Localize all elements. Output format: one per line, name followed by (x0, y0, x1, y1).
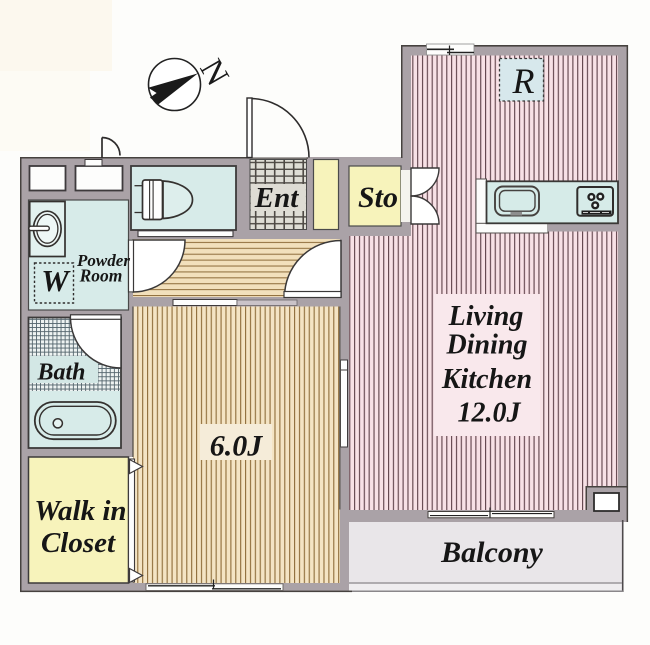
svg-text:R: R (512, 61, 535, 101)
svg-text:W: W (41, 263, 71, 298)
svg-text:Dining: Dining (446, 330, 528, 361)
svg-text:Walk in: Walk in (34, 495, 126, 527)
svg-text:12.0J: 12.0J (458, 398, 522, 429)
svg-text:Balcony: Balcony (440, 536, 543, 569)
svg-text:Room: Room (79, 266, 123, 286)
svg-text:Bath: Bath (36, 360, 85, 386)
svg-text:Kitchen: Kitchen (441, 364, 532, 395)
svg-text:Closet: Closet (41, 527, 116, 559)
svg-text:Living: Living (448, 301, 524, 332)
svg-text:Sto: Sto (358, 181, 398, 214)
svg-text:6.0J: 6.0J (210, 430, 264, 463)
svg-text:Ent: Ent (254, 182, 299, 214)
